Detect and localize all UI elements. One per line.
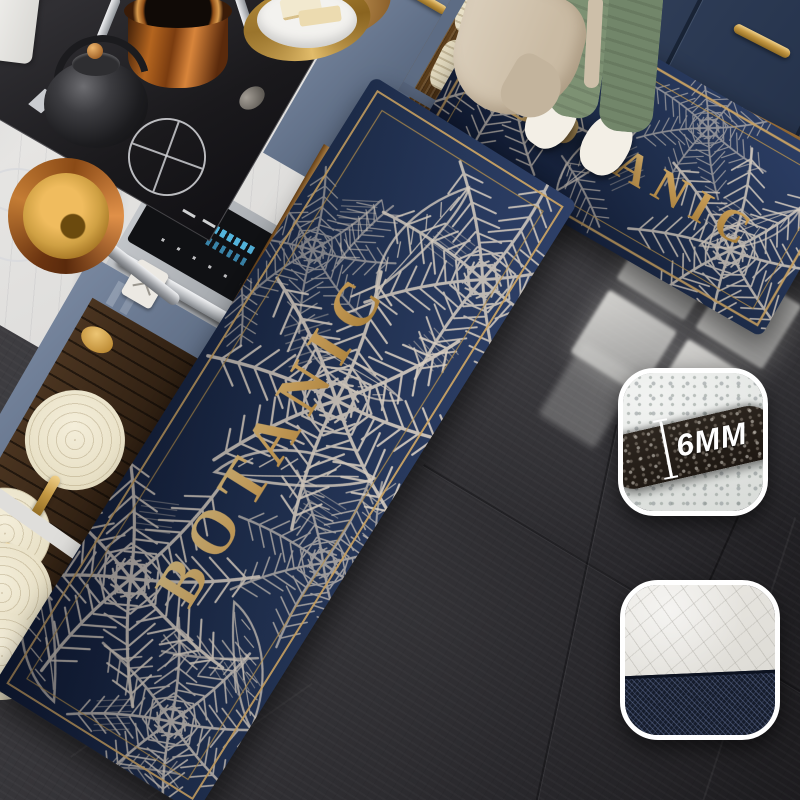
black-kettle bbox=[38, 52, 153, 150]
serving-plate-cluster bbox=[235, 0, 405, 70]
fabric-swatch bbox=[620, 669, 780, 740]
measure-line-icon bbox=[659, 421, 673, 478]
thickness-badge: 6MM bbox=[618, 368, 768, 516]
kitchen-mat-product-photo: BOTANIC bbox=[0, 0, 800, 800]
saucepan-contents bbox=[23, 173, 109, 259]
kettle-knob bbox=[87, 43, 103, 59]
burner-cross bbox=[152, 122, 179, 192]
oven-buttons bbox=[161, 238, 240, 286]
cabinet-groove bbox=[793, 0, 800, 142]
leather-swatch bbox=[625, 585, 775, 677]
material-badge bbox=[620, 580, 780, 740]
thickness-label: 6MM bbox=[673, 416, 750, 465]
copper-saucepan bbox=[8, 158, 132, 282]
measure-cap-icon bbox=[664, 475, 678, 480]
